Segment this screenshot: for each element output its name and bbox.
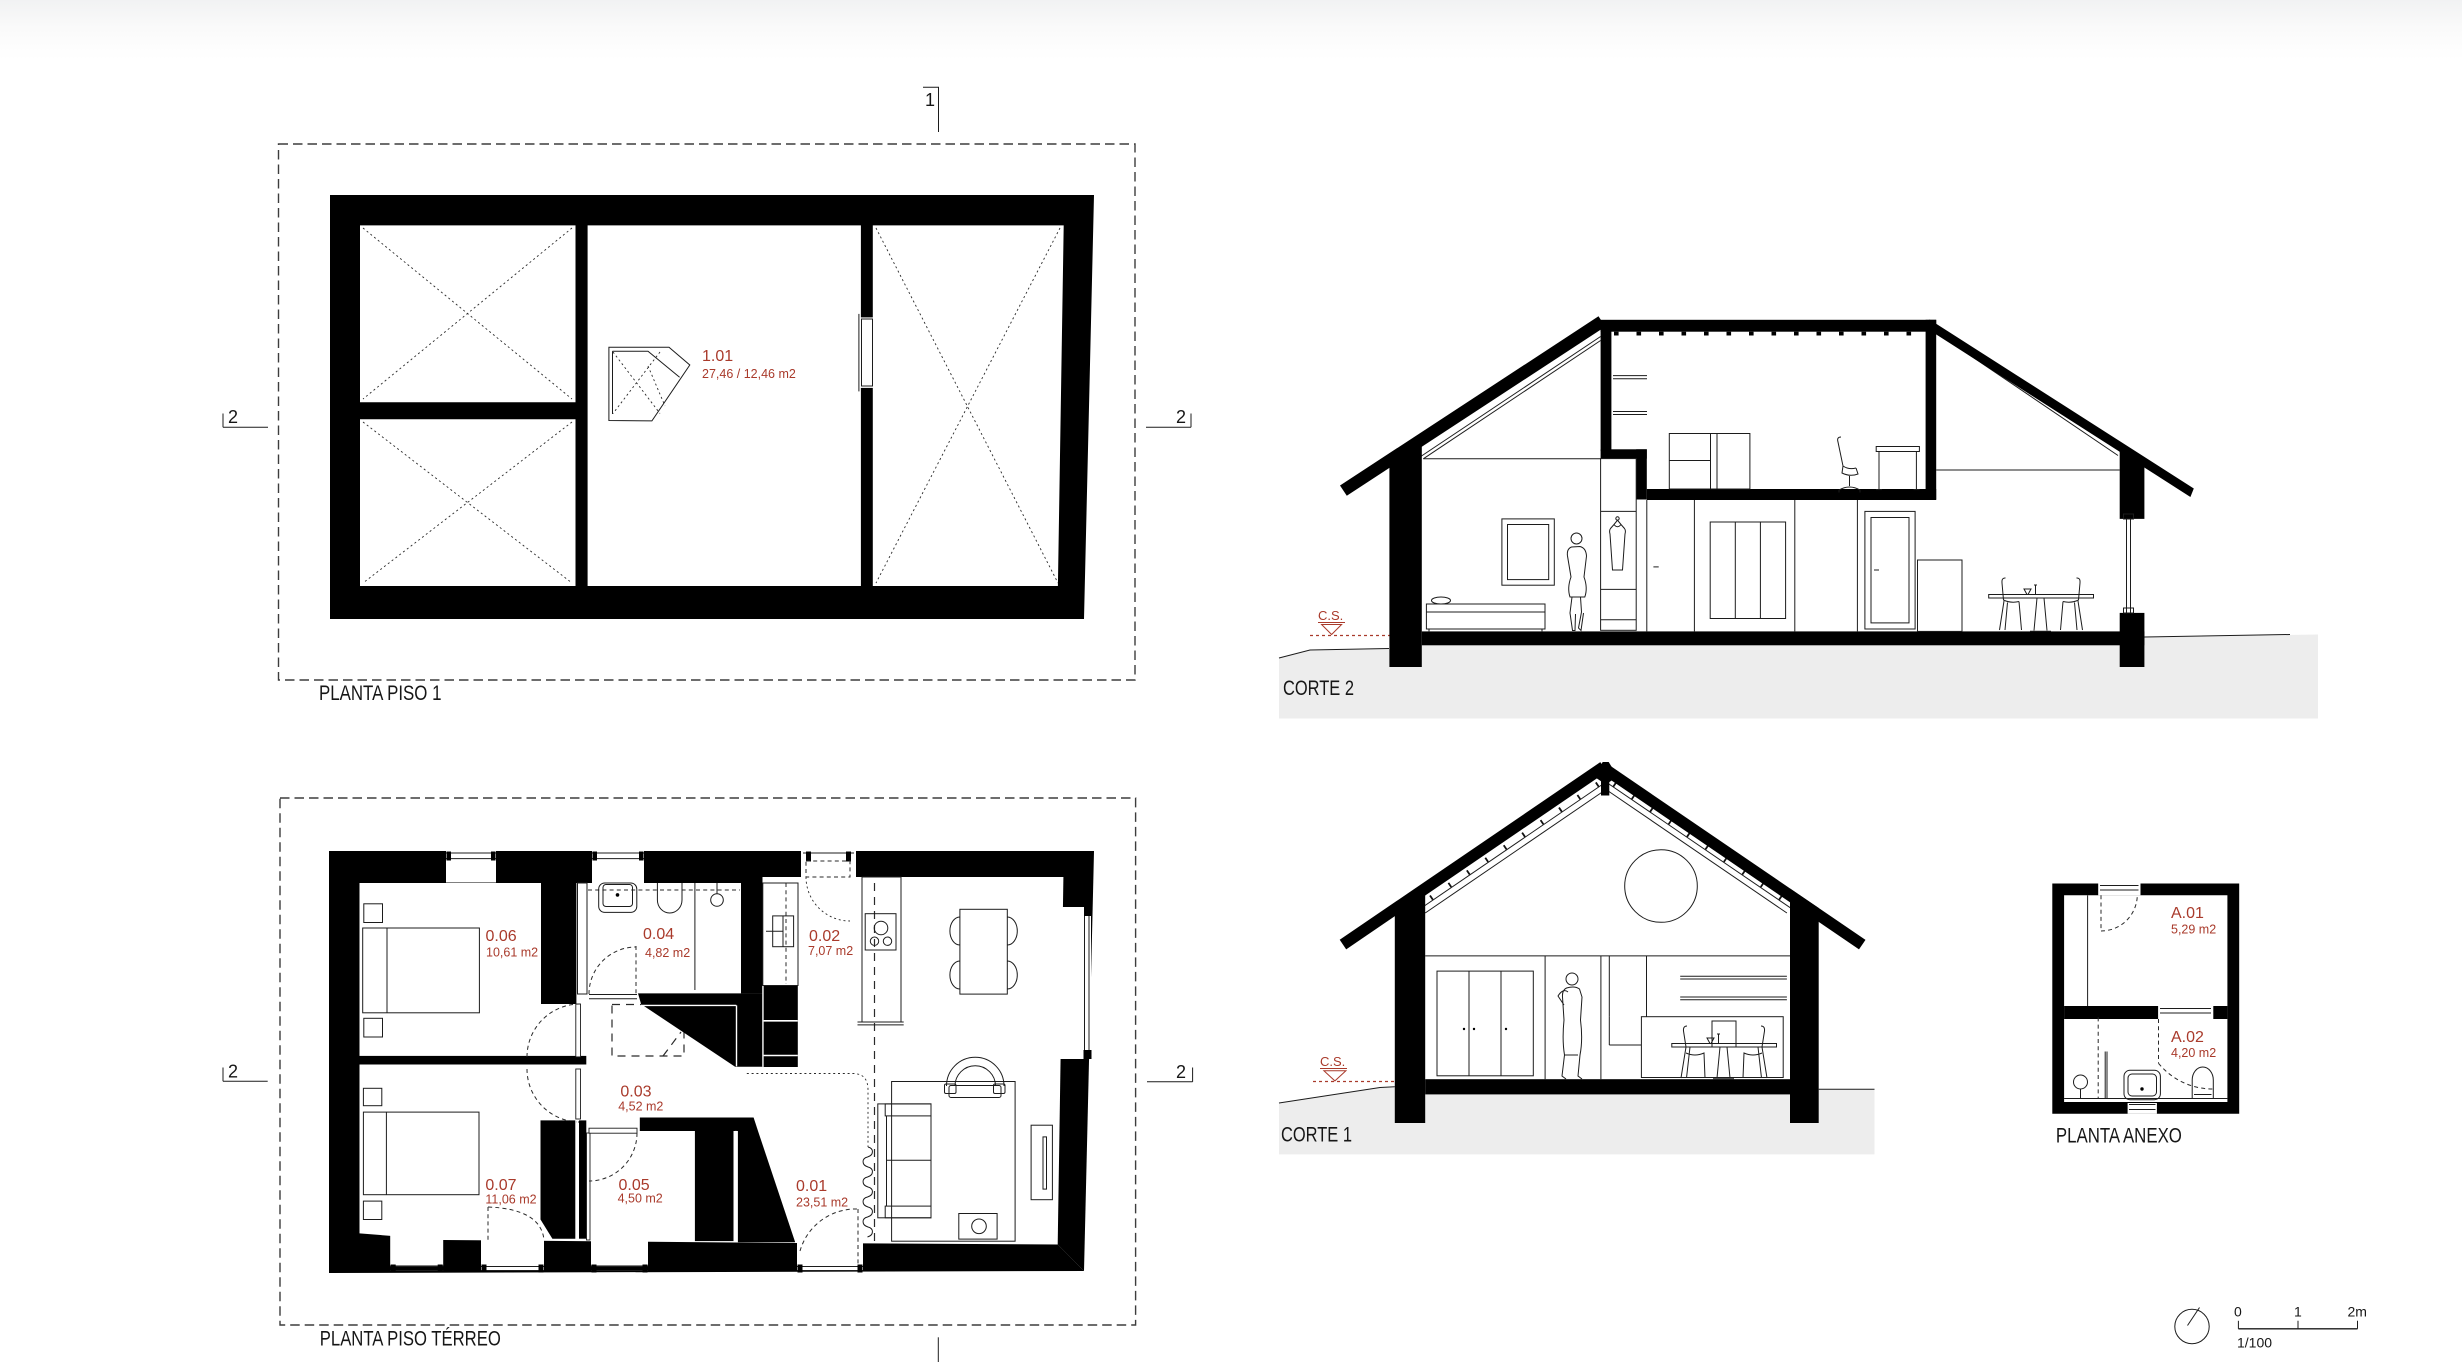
svg-text:2: 2	[1176, 407, 1186, 427]
svg-text:11,06 m2: 11,06 m2	[485, 1193, 536, 1207]
svg-text:CORTE 2: CORTE 2	[1283, 677, 1354, 700]
svg-text:0.07: 0.07	[485, 1177, 516, 1194]
svg-text:1/100: 1/100	[2237, 1335, 2272, 1351]
svg-text:PLANTA PISO 1: PLANTA PISO 1	[319, 682, 442, 705]
svg-text:27,46 / 12,46 m2: 27,46 / 12,46 m2	[702, 367, 796, 381]
svg-text:1.01: 1.01	[702, 348, 733, 365]
svg-text:5,29 m2: 5,29 m2	[2171, 923, 2216, 937]
svg-text:0.01: 0.01	[796, 1178, 827, 1195]
svg-text:0.04: 0.04	[643, 926, 674, 943]
svg-text:4,82 m2: 4,82 m2	[645, 946, 690, 960]
svg-text:4,52 m2: 4,52 m2	[618, 1100, 663, 1114]
svg-text:4,50 m2: 4,50 m2	[618, 1192, 663, 1206]
svg-text:2: 2	[1176, 1062, 1186, 1082]
svg-text:C.S.: C.S.	[1320, 1054, 1345, 1069]
svg-text:CORTE 1: CORTE 1	[1281, 1124, 1352, 1147]
svg-text:A.02: A.02	[2171, 1029, 2204, 1046]
svg-text:23,51 m2: 23,51 m2	[796, 1196, 848, 1210]
svg-text:0.06: 0.06	[486, 928, 517, 945]
svg-text:0.03: 0.03	[620, 1084, 651, 1101]
svg-text:2: 2	[228, 1062, 238, 1082]
svg-text:2: 2	[228, 407, 238, 427]
svg-text:7,07 m2: 7,07 m2	[808, 944, 853, 958]
svg-text:10,61 m2: 10,61 m2	[486, 946, 538, 960]
svg-text:0: 0	[2234, 1304, 2242, 1320]
svg-text:1: 1	[2294, 1304, 2302, 1320]
svg-text:0.02: 0.02	[809, 928, 840, 945]
svg-text:PLANTA PISO TÉRREO: PLANTA PISO TÉRREO	[320, 1328, 501, 1351]
svg-text:PLANTA ANEXO: PLANTA ANEXO	[2056, 1125, 2182, 1148]
svg-text:2m: 2m	[2348, 1304, 2367, 1320]
svg-text:1: 1	[925, 90, 935, 110]
svg-text:C.S.: C.S.	[1318, 608, 1343, 623]
svg-text:A.01: A.01	[2171, 905, 2204, 922]
svg-text:4,20 m2: 4,20 m2	[2171, 1046, 2216, 1060]
